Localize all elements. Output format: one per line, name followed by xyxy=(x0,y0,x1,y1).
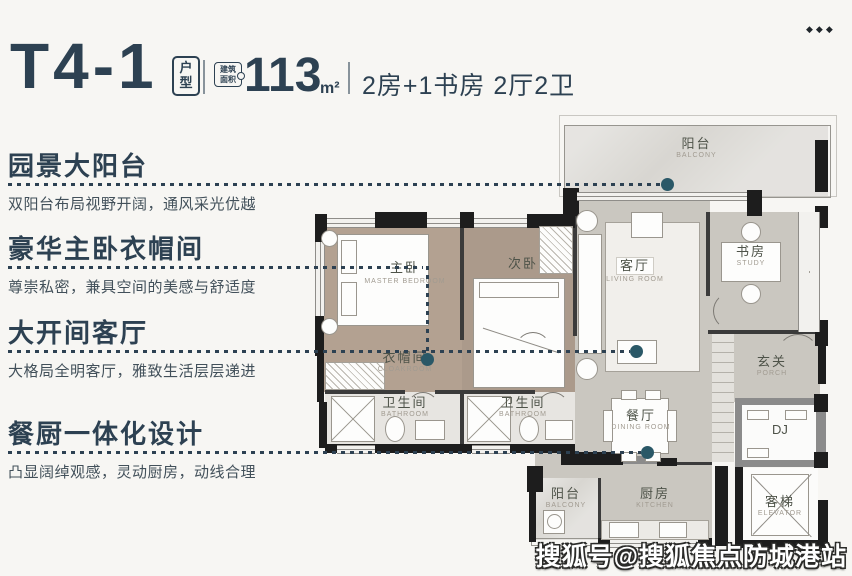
connector-dot-kitchen xyxy=(641,446,654,459)
wall xyxy=(319,402,327,448)
more-dots-icon: ◆◆◆ xyxy=(806,24,836,35)
window xyxy=(315,242,325,316)
dj-box xyxy=(785,410,807,420)
connector-dot-balcony xyxy=(661,178,674,191)
area-badge-line1: 建筑 xyxy=(218,65,238,75)
label-balcony-bottom: 阳台 BALCONY xyxy=(533,486,599,511)
nightstand xyxy=(321,318,338,335)
chair xyxy=(621,390,637,400)
header-divider-2 xyxy=(348,62,350,94)
connector-line-cloakroom xyxy=(8,266,423,269)
wall xyxy=(715,466,728,546)
wall xyxy=(735,460,821,467)
wall xyxy=(814,394,828,412)
page-title: T4-1 xyxy=(10,34,158,98)
wall xyxy=(435,390,535,394)
feature-desc-kitchen: 凸显阔绰观感，灵动厨房，动线合理 xyxy=(8,461,256,482)
sofa xyxy=(578,234,602,354)
stove xyxy=(659,522,687,538)
study-wardrobe xyxy=(798,212,820,332)
wall xyxy=(735,398,742,466)
wall xyxy=(317,356,324,402)
label-bathroom-2: 卫生间 BATHROOM xyxy=(473,395,573,420)
label-study: 书房 STUDY xyxy=(715,244,787,269)
wall xyxy=(735,398,821,405)
area-unit: m² xyxy=(320,80,340,98)
window xyxy=(427,218,460,228)
wall xyxy=(375,212,427,228)
area-badge-line2: 面积 xyxy=(218,75,238,85)
label-dining-room: 餐厅 DINING ROOM xyxy=(591,408,691,433)
dj-box xyxy=(747,448,769,458)
floorplan-page: T4-1 户 型 建筑 面积 113 m² 2房+1书房 2厅2卫 ◆◆◆ 园景… xyxy=(0,0,852,576)
label-porch: 玄关 PORCH xyxy=(727,354,817,379)
wall xyxy=(706,212,710,296)
chair xyxy=(645,390,661,400)
connector-dot-living xyxy=(630,345,643,358)
connector-line-kitchen xyxy=(8,451,641,454)
wall xyxy=(460,212,474,228)
connector-line-living xyxy=(8,350,630,353)
unit-type-badge-char1: 户 xyxy=(178,61,194,76)
armchair xyxy=(631,212,663,238)
feature-desc-livingroom: 大格局全明客厅，雅致生活层层递进 xyxy=(8,360,256,381)
nightstand xyxy=(321,230,338,247)
pillow xyxy=(479,282,559,298)
wall xyxy=(818,346,826,384)
floorplan: 阳台 BALCONY 主卧 MASTER BEDROOM 次卧 客厅 LIVIN… xyxy=(315,110,852,550)
wall xyxy=(677,462,712,465)
label-living-room: 客厅 LIVING ROOM xyxy=(585,256,685,285)
wall xyxy=(460,392,464,446)
connector-dot-cloakroom xyxy=(421,353,434,366)
kitchen-sink xyxy=(609,522,639,538)
connector-line-balcony xyxy=(8,183,662,186)
feature-title-cloakroom: 豪华主卧衣帽间 xyxy=(8,229,204,266)
feature-title-balcony: 园景大阳台 xyxy=(8,146,148,183)
unit-type-badge-char2: 型 xyxy=(178,76,194,91)
connector-line-cloakroom-v xyxy=(426,266,429,356)
label-dj: DJ xyxy=(742,422,818,438)
label-bathroom-1: 卫生间 BATHROOM xyxy=(355,395,455,420)
label-cloakroom: 衣帽间 CLOAKROOM xyxy=(355,350,455,375)
label-kitchen: 厨房 KITCHEN xyxy=(603,486,707,511)
wall xyxy=(814,452,828,468)
area-badge: 建筑 面积 xyxy=(214,62,242,87)
label-elevator: 客梯 ELEVATOR xyxy=(742,494,818,519)
washer-drum xyxy=(547,514,562,529)
chair xyxy=(741,222,761,242)
layout-summary: 2房+1书房 2厅2卫 xyxy=(362,66,575,102)
label-master-bedroom: 主卧 MASTER BEDROOM xyxy=(335,258,475,287)
pillow xyxy=(341,282,357,316)
watermark: 搜狐号@搜狐焦点防城港站 xyxy=(536,537,847,573)
window xyxy=(474,218,527,228)
feature-title-livingroom: 大开间客厅 xyxy=(8,313,148,350)
side-table xyxy=(576,210,598,232)
feature-title-kitchen: 餐厨一体化设计 xyxy=(8,414,204,451)
unit-type-badge: 户 型 xyxy=(172,56,200,96)
label-balcony-top: 阳台 BALCONY xyxy=(565,136,828,161)
area-value: 113 xyxy=(244,52,321,100)
dj-box xyxy=(747,410,769,420)
door-arc xyxy=(713,292,751,330)
window xyxy=(327,218,375,228)
feature-desc-cloakroom: 尊崇私密，兼具空间的美感与舒适度 xyxy=(8,276,256,297)
side-table xyxy=(576,358,598,380)
wall xyxy=(325,390,405,394)
label-second-bedroom: 次卧 xyxy=(475,256,571,272)
feature-desc-balcony: 双阳台布局视野开阔，通风采光优越 xyxy=(8,193,256,214)
unit-code: T4-1 xyxy=(10,30,158,102)
sliding-door xyxy=(577,192,747,201)
wall xyxy=(747,190,762,216)
header-divider-1 xyxy=(203,60,205,94)
